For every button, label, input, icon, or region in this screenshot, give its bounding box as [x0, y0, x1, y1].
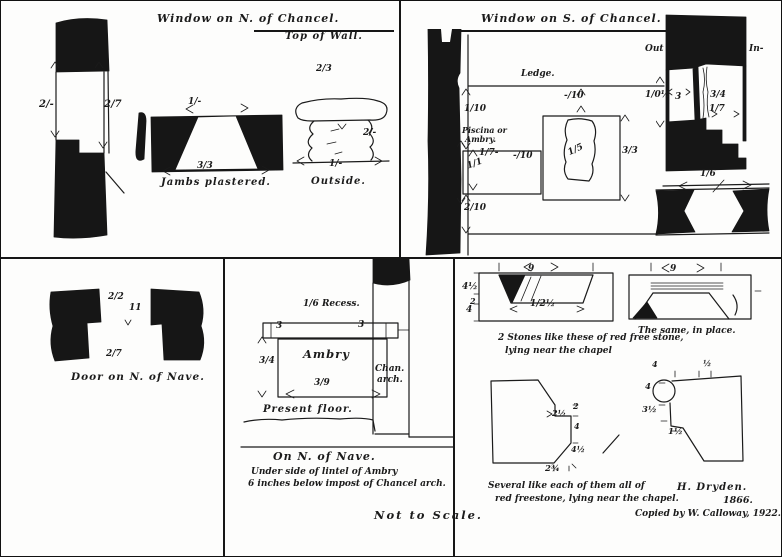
- piscina-label-line2: Ambry.: [465, 135, 496, 143]
- top-of-wall-label: Top of Wall.: [285, 32, 363, 42]
- section-dim-a: 3: [675, 93, 681, 102]
- stone1-dim-3: 4: [466, 306, 472, 315]
- south-window-elevation-figure: [421, 29, 667, 257]
- stone4-dim-l1: 4: [645, 383, 651, 392]
- ambry-caption-2: Under side of lintel of Ambry: [251, 468, 398, 477]
- dim-upper: 1/10: [464, 105, 486, 114]
- stone1-dim-2: 2: [470, 297, 476, 305]
- present-floor-label: Present floor.: [263, 405, 353, 415]
- dim-lower: 2/10: [464, 204, 486, 213]
- piscina-side-dim: -/10: [513, 152, 533, 161]
- sill-width-dim: 1/6: [700, 170, 716, 179]
- stone3-notch-dim: 2½: [552, 409, 566, 417]
- stone2-dim-top: 9: [670, 265, 676, 274]
- outside-dim-right: 2/-: [363, 129, 376, 138]
- stone4-figure: [641, 369, 766, 469]
- stone3-caption-line1: Several like each of them all of: [488, 482, 645, 491]
- stone1-figure: [471, 261, 621, 329]
- ambry-dim-bottom: 3/9: [314, 379, 330, 388]
- stone3-caption-line2: red freestone, lying near the chapel.: [495, 495, 679, 504]
- vertical-divider-bottom-left: [223, 257, 225, 557]
- south-window-title: Window on S. of Chancel.: [481, 13, 662, 24]
- section-dim-b: 3/4: [710, 91, 726, 100]
- stone3-figure: [479, 373, 624, 478]
- not-to-scale-note: Not to Scale.: [374, 510, 483, 522]
- splayed-jamb-plan-figure: [149, 96, 285, 178]
- vertical-divider-top: [399, 1, 401, 259]
- ledge-label: Ledge.: [521, 70, 555, 79]
- wall-thickness-dim: 1/0½: [645, 91, 670, 100]
- jamb-dim-left: 2/-: [39, 100, 54, 110]
- splay-dim-bottom: 3/3: [197, 162, 213, 171]
- door-caption: Door on N. of Nave.: [71, 372, 205, 383]
- splay-dim-top: 1/-: [188, 98, 201, 107]
- in-label: In-: [749, 45, 764, 54]
- splay-caption: Jambs plastered.: [161, 178, 271, 188]
- stone3-dim-r1: 2: [573, 402, 579, 410]
- stone1-dim-top: 9: [528, 265, 534, 274]
- stone3-dim-r3: 4½: [571, 445, 585, 453]
- stone4-dim-l2: 3½: [642, 406, 657, 415]
- sill-section-figure: [653, 179, 778, 241]
- lintel-dim-right: 3: [358, 321, 364, 330]
- recess-label: 1/6 Recess.: [303, 300, 360, 309]
- ambry-dim-left: 3/4: [259, 357, 275, 366]
- door-dim-top: 2/2: [108, 293, 124, 302]
- ambry-caption-1: On N. of Nave.: [273, 451, 376, 462]
- north-window-title: Window on N. of Chancel.: [157, 13, 339, 24]
- stone1-dim-1: 4½: [462, 283, 478, 292]
- outside-dim-top: 2/3: [316, 65, 332, 74]
- signature-year: 1866.: [723, 496, 753, 506]
- copied-by-note: Copied by W. Calloway, 1922.: [635, 510, 781, 519]
- stone2-figure: [621, 261, 763, 325]
- north-window-jamb-plan-figure: [29, 9, 154, 241]
- stone4-dim-t2: ½: [703, 359, 711, 367]
- stone4-dim-l3: 1½: [668, 428, 683, 437]
- stone1-dim-inner: 1/2½: [530, 300, 555, 309]
- piscina-width-dim: 1/7-: [479, 149, 499, 158]
- chancel-arch-label-line2: arch.: [377, 376, 403, 385]
- stone3-dim-bottom: 2¾: [545, 465, 560, 474]
- drawing-sheet: Window on N. of Chancel. Top of Wall. 2/…: [0, 0, 782, 557]
- stone1-caption-line2: lying near the chapel: [505, 347, 612, 356]
- stone2-caption: The same, in place.: [638, 327, 736, 336]
- stone3-dim-r2: 4: [574, 422, 580, 430]
- signature: H. Dryden.: [677, 483, 747, 493]
- window-top-dim: -/10: [564, 92, 584, 101]
- door-dim-mid: 11: [129, 304, 142, 313]
- chancel-arch-label-line1: Chan.: [375, 365, 404, 374]
- ambry-name-label: Ambry: [303, 349, 350, 361]
- door-dim-bottom: 2/7: [106, 350, 122, 359]
- outside-caption: Outside.: [311, 177, 366, 187]
- stone4-dim-t1: 4: [652, 360, 658, 368]
- ambry-caption-3: 6 inches below impost of Chancel arch.: [248, 480, 446, 489]
- out-label: Out: [645, 45, 664, 54]
- section-dim-c: 1/7: [709, 105, 725, 114]
- window-side-dim: 3/3: [622, 147, 638, 156]
- lintel-dim-left: 3: [276, 322, 282, 331]
- jamb-dim-right: 2/7: [104, 100, 122, 110]
- outside-dim-bottom: 1/-: [329, 160, 342, 169]
- piscina-label-line1: Piscina or: [462, 126, 507, 134]
